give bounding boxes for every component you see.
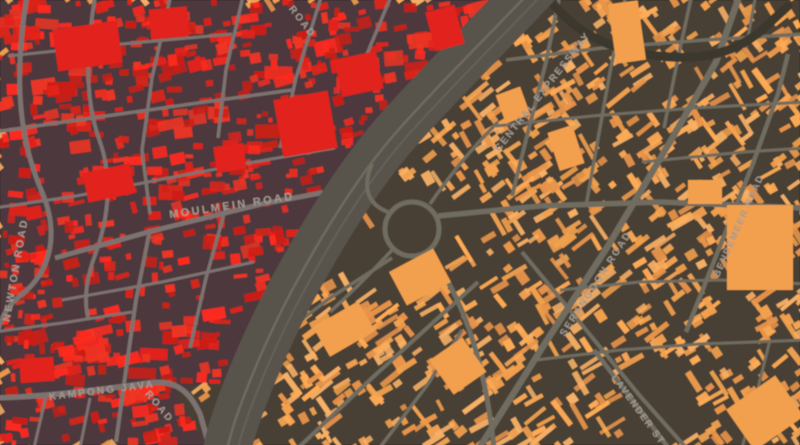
building (5, 336, 14, 343)
building (214, 319, 230, 324)
building (365, 107, 372, 113)
building (338, 12, 346, 20)
building (20, 428, 29, 438)
building (212, 369, 221, 378)
building (50, 345, 55, 353)
building (257, 114, 262, 118)
building (361, 115, 367, 120)
building (119, 69, 129, 76)
building (268, 118, 272, 123)
building (67, 126, 75, 131)
building (30, 417, 40, 422)
building (255, 228, 271, 236)
building (269, 54, 278, 60)
building (102, 97, 107, 101)
building (159, 321, 172, 330)
building (237, 118, 247, 124)
building (128, 367, 156, 379)
building (41, 281, 46, 285)
building (165, 284, 175, 293)
building (206, 80, 214, 87)
building (204, 18, 212, 27)
building (255, 124, 279, 138)
building (31, 314, 40, 320)
building (249, 52, 262, 64)
map-svg: MOULMEIN ROADCENTRAL EXPRESSWAYNEWTON RO… (0, 0, 800, 445)
building (66, 275, 72, 282)
building (76, 1, 81, 7)
map-layers: MOULMEIN ROADCENTRAL EXPRESSWAYNEWTON RO… (0, 0, 800, 445)
building (328, 20, 338, 32)
building (230, 253, 241, 265)
building (98, 365, 106, 375)
building (116, 329, 123, 336)
building (88, 308, 97, 315)
building (334, 87, 341, 94)
building (200, 59, 212, 71)
building-landmark (52, 21, 122, 72)
building (133, 62, 138, 67)
building (242, 81, 252, 91)
building (162, 250, 174, 258)
building (404, 55, 409, 62)
building (30, 103, 37, 115)
building (59, 104, 71, 110)
building (4, 14, 13, 25)
building (344, 27, 359, 32)
building (248, 168, 253, 172)
building-landmark (149, 6, 189, 39)
building (125, 21, 136, 28)
building (0, 55, 2, 60)
building (3, 231, 7, 238)
building (181, 378, 193, 384)
building (62, 349, 75, 362)
building (185, 162, 194, 174)
building (24, 340, 29, 349)
building (167, 87, 182, 93)
building (183, 119, 195, 127)
building (43, 90, 48, 94)
building (52, 297, 62, 307)
building (19, 168, 32, 179)
building (35, 39, 41, 45)
building (161, 185, 168, 192)
building (211, 0, 217, 6)
building (376, 42, 388, 46)
building (311, 2, 316, 8)
building (0, 434, 13, 442)
building (85, 214, 92, 226)
building (286, 174, 291, 178)
building (359, 120, 364, 125)
building (256, 269, 263, 273)
building (84, 332, 91, 337)
building (343, 132, 353, 137)
building (193, 143, 203, 149)
building (126, 253, 132, 260)
building (58, 23, 72, 28)
building (100, 257, 112, 263)
building (33, 96, 43, 105)
building (264, 66, 292, 79)
building (95, 89, 107, 98)
building-landmark (213, 143, 246, 173)
building (147, 167, 162, 175)
building (162, 303, 169, 309)
building (173, 108, 188, 116)
building (404, 3, 417, 12)
building (118, 136, 129, 143)
building (127, 0, 132, 5)
building (249, 146, 261, 155)
building (342, 50, 348, 57)
building (240, 50, 250, 57)
building (65, 221, 74, 233)
building (263, 111, 268, 116)
building (241, 30, 255, 38)
building-landmark (19, 357, 55, 383)
building-landmark (273, 91, 337, 158)
building (323, 42, 329, 53)
building (384, 50, 404, 66)
building (142, 354, 150, 363)
building (337, 46, 343, 52)
building (128, 438, 139, 445)
building (415, 50, 426, 60)
building (18, 310, 23, 318)
building (210, 181, 226, 192)
building-landmark (688, 180, 722, 204)
building (209, 380, 220, 384)
building (196, 372, 207, 383)
building (174, 404, 185, 416)
building (7, 84, 18, 95)
building (11, 373, 16, 382)
building (105, 262, 116, 271)
building (195, 25, 203, 34)
building (159, 262, 163, 270)
building (0, 271, 7, 278)
building (108, 272, 114, 280)
building (171, 325, 187, 338)
building (167, 54, 177, 66)
building (253, 2, 260, 9)
building (113, 353, 120, 357)
building (62, 434, 70, 442)
building (185, 154, 193, 158)
building (8, 213, 15, 223)
building (38, 290, 45, 294)
building (179, 416, 186, 427)
building (39, 343, 45, 354)
map-canvas[interactable]: MOULMEIN ROADCENTRAL EXPRESSWAYNEWTON RO… (0, 0, 800, 445)
building (23, 26, 41, 41)
building (247, 129, 253, 135)
building (204, 173, 212, 177)
building (38, 5, 51, 13)
building (172, 190, 185, 201)
building (152, 146, 168, 159)
